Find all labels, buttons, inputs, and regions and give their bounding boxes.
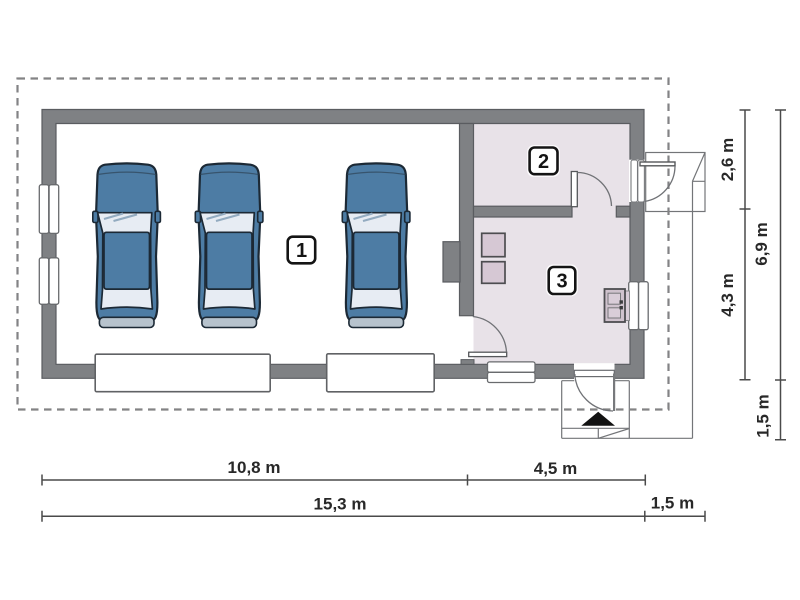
svg-text:2,6 m: 2,6 m	[718, 138, 737, 181]
svg-text:15,3 m: 15,3 m	[314, 495, 367, 514]
svg-text:1,5 m: 1,5 m	[651, 494, 694, 513]
svg-text:1,5 m: 1,5 m	[754, 394, 773, 437]
svg-text:1: 1	[296, 240, 307, 262]
svg-text:6,9 m: 6,9 m	[752, 222, 771, 265]
svg-text:4,5 m: 4,5 m	[534, 459, 577, 478]
svg-text:4,3 m: 4,3 m	[718, 273, 737, 316]
svg-text:10,8 m: 10,8 m	[228, 458, 281, 477]
svg-text:3: 3	[556, 271, 567, 293]
svg-text:2: 2	[538, 151, 549, 173]
